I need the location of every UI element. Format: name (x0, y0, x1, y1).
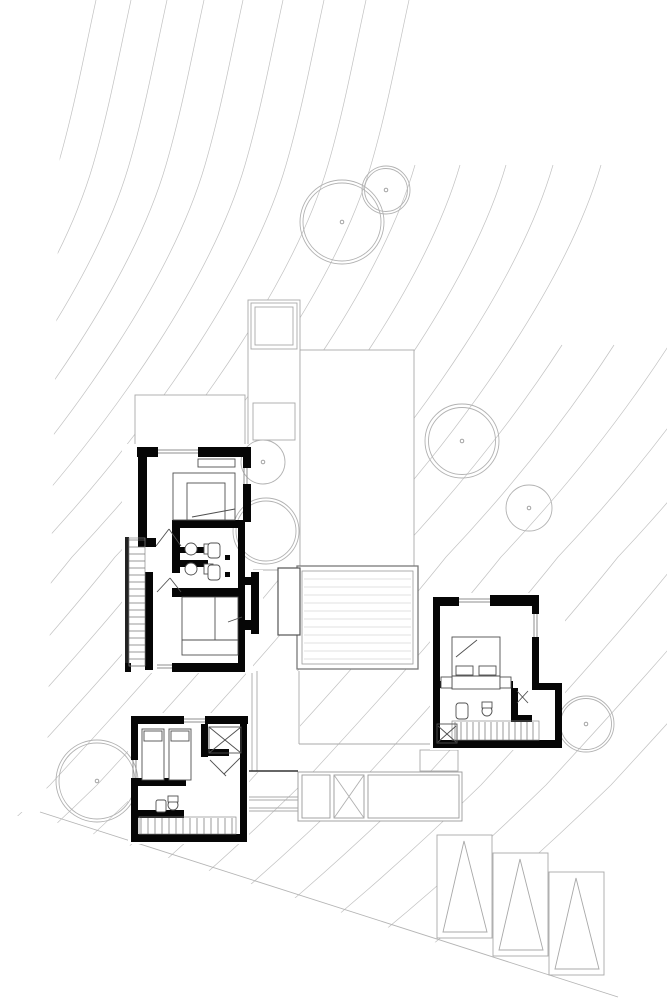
site-plan-page (0, 0, 667, 1000)
wall (433, 740, 562, 748)
wall (208, 749, 229, 756)
tree-canopy (303, 183, 381, 261)
toilet (185, 543, 197, 555)
tree-trunk-dot (384, 188, 388, 192)
wall (433, 597, 440, 748)
wall (243, 484, 251, 522)
tree-trunk-dot (527, 506, 531, 510)
toilet-tank (482, 702, 492, 708)
wall (125, 537, 129, 670)
tree-trunk-dot (584, 722, 588, 726)
tree-canopy (365, 169, 408, 212)
wall (138, 538, 156, 547)
tree-canopy (429, 408, 496, 475)
tree-trunk-dot (340, 220, 344, 224)
toilet (185, 563, 197, 575)
fixture-dot (146, 810, 149, 815)
storage-row (298, 772, 462, 821)
tree-canopy (425, 404, 499, 478)
tree-trunk-dot (95, 779, 99, 783)
deck-step (420, 750, 458, 771)
walkway-mask (246, 671, 300, 772)
pool-bench (278, 568, 300, 635)
wall (125, 663, 131, 672)
nightstand (441, 677, 452, 688)
wall (172, 520, 242, 528)
wall-pier (251, 572, 259, 634)
roof-outline-west (135, 395, 245, 447)
tree-canopy (561, 699, 612, 750)
pool-outer (297, 566, 418, 669)
roof-strip (248, 300, 300, 570)
sink (456, 703, 468, 719)
wall (131, 716, 138, 760)
wall (532, 595, 539, 614)
sink (156, 800, 166, 812)
tree-canopy (56, 740, 138, 822)
bed (182, 597, 238, 655)
sink (208, 565, 220, 580)
tree-canopy (59, 743, 135, 819)
sink (208, 543, 220, 558)
wall (131, 834, 247, 842)
wall (532, 637, 539, 690)
wall-pier-tab (245, 620, 251, 630)
wall (555, 683, 562, 748)
wall (172, 663, 245, 672)
wall (138, 447, 147, 540)
tree-trunk-dot (460, 439, 464, 443)
tree-canopy (300, 180, 384, 264)
bed (173, 473, 235, 520)
fixture-dot (225, 555, 230, 560)
tree-canopy (558, 696, 614, 752)
wall (243, 447, 251, 468)
bed (142, 729, 164, 780)
pool (278, 566, 418, 669)
bed (169, 729, 191, 780)
shelf (198, 459, 235, 467)
toilet-tank (168, 796, 178, 802)
wall (198, 447, 250, 457)
fixture-dot (225, 572, 230, 577)
floor-plan-svg (0, 0, 667, 1000)
wall (131, 716, 184, 724)
wall (172, 588, 242, 597)
offsite-mask-west (0, 0, 92, 812)
roof-outline-main (300, 350, 414, 568)
bed (452, 637, 500, 689)
wall (145, 572, 153, 670)
wall (201, 724, 208, 757)
nightstand (500, 677, 511, 688)
wall (490, 595, 539, 606)
wall-pier-tab (245, 577, 251, 585)
floor-plan-canvas (0, 0, 667, 1000)
